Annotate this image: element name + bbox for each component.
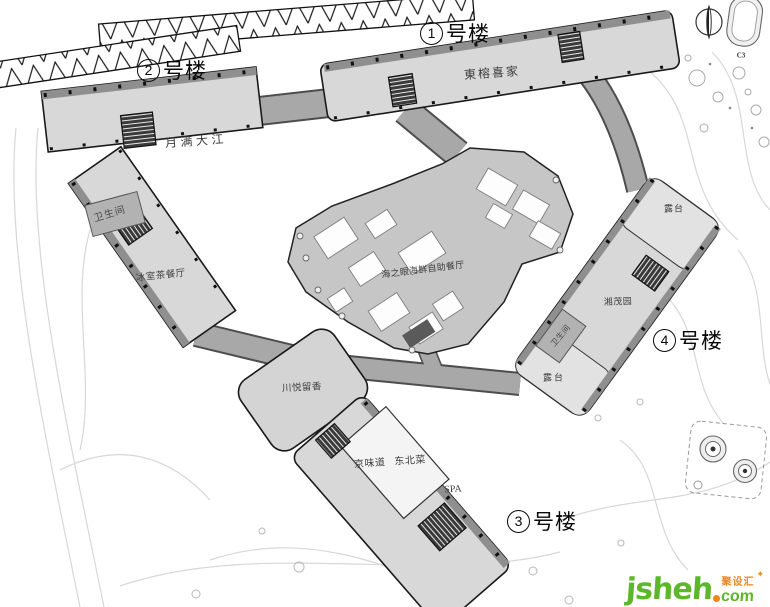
- building-2-number: 2: [137, 59, 160, 82]
- label-spa: SPA: [444, 485, 462, 496]
- watermark-tld-text: com: [721, 589, 755, 605]
- landscape-feature-label: C3: [737, 53, 746, 60]
- watermark-dot-icon: [713, 595, 720, 602]
- building-4-tag: 4 号楼: [653, 325, 723, 355]
- central-restaurant: [288, 148, 573, 354]
- building-2-suffix: 号楼: [163, 55, 207, 85]
- watermark-logo-text: jsheh: [625, 575, 713, 605]
- watermark-right-column: 聚设汇 com: [721, 578, 754, 605]
- building-3-tag: 3 号楼: [507, 506, 577, 536]
- landscape-feature: [725, 0, 765, 48]
- label-terrace-bottom: 露台: [543, 374, 565, 383]
- building-1-tag: 1 号楼: [420, 18, 490, 48]
- label-terrace-top: 露台: [664, 205, 684, 214]
- label-xiangmao-yuan: 湘茂园: [604, 297, 633, 307]
- building-4-number: 4: [653, 329, 676, 352]
- site-plan: 1 号楼 2 号楼 3 号楼 4 号楼 東榕喜家 月满大江 卫生间 冰室茶餐厅 …: [0, 0, 770, 607]
- watermark-cn-text: 聚设汇: [721, 578, 754, 588]
- building-2: [41, 67, 263, 347]
- building-4-suffix: 号楼: [679, 325, 723, 355]
- stair-core: [121, 112, 157, 148]
- building-1-suffix: 号楼: [446, 18, 490, 48]
- feature-tree-icons: [684, 420, 767, 500]
- tree-icons-top-right: [685, 55, 769, 147]
- building-3-number: 3: [507, 510, 530, 533]
- compass-icon: [696, 6, 722, 38]
- jsheh-watermark: jsheh 聚设汇 com ✦: [626, 570, 764, 605]
- watermark-sparkle-icon: ✦: [756, 570, 764, 579]
- building-3-suffix: 号楼: [533, 506, 577, 536]
- site-plan-canvas: [0, 0, 770, 607]
- building-1-number: 1: [420, 22, 443, 45]
- label-dongrong-xijia: 東榕喜家: [464, 65, 521, 81]
- building-2-tag: 2 号楼: [137, 55, 207, 85]
